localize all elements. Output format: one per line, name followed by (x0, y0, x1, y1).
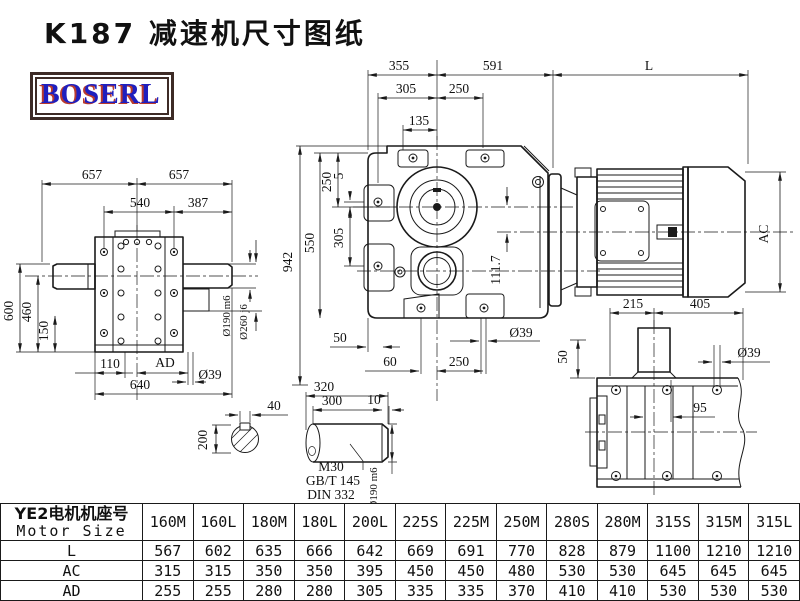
dim-405: 405 (690, 296, 711, 311)
dim-40: 40 (267, 398, 281, 413)
value-cell: 335 (395, 581, 446, 601)
value-cell: 530 (547, 561, 598, 581)
dim-600: 600 (1, 301, 16, 322)
engineering-drawing: 355 591 L 305 250 135 942 550 250 5 305 … (0, 0, 800, 503)
dim-387: 387 (188, 195, 209, 210)
col-header: 315L (749, 504, 800, 541)
dim-dia39-front: Ø39 (509, 325, 532, 340)
dim-dia260-side: Ø260 j6 (238, 304, 250, 340)
row-label: L (1, 541, 143, 561)
value-cell: 666 (294, 541, 345, 561)
value-cell: 315 (193, 561, 244, 581)
value-cell: 280 (244, 581, 295, 601)
table-row-AC: AC 315 315 350 350 395 450 450 480 530 5… (1, 561, 800, 581)
value-cell: 1210 (698, 541, 749, 561)
shaft-side-detail: 320 300 10 M30 GB/T 145 DIN 332 Ø190 m6 (306, 379, 404, 503)
flange-bolt-holes (118, 239, 161, 344)
label-m30: M30 (318, 459, 344, 474)
dim-540: 540 (130, 195, 151, 210)
col-header: 315S (648, 504, 699, 541)
dim-dia39-side: Ø39 (198, 367, 221, 382)
dim-150: 150 (36, 321, 51, 342)
row-label: AC (1, 561, 143, 581)
row-label: AD (1, 581, 143, 601)
value-cell: 530 (749, 581, 800, 601)
value-cell: 395 (345, 561, 396, 581)
dim-942: 942 (280, 252, 295, 272)
dim-460: 460 (19, 302, 34, 323)
top-view: Ø39 95 215 405 (585, 296, 770, 497)
value-cell: 530 (698, 581, 749, 601)
value-cell: 410 (597, 581, 648, 601)
dim-200: 200 (195, 430, 210, 451)
value-cell: 645 (749, 561, 800, 581)
dim-355: 355 (389, 58, 410, 73)
value-cell: 645 (648, 561, 699, 581)
value-cell: 1210 (749, 541, 800, 561)
value-cell: 255 (143, 581, 194, 601)
col-header: 180M (244, 504, 295, 541)
col-header: 160M (143, 504, 194, 541)
col-header: 280M (597, 504, 648, 541)
motor-view: AC (549, 167, 786, 306)
value-cell: 370 (496, 581, 547, 601)
col-header: 200L (345, 504, 396, 541)
value-cell: 691 (446, 541, 497, 561)
dim-640: 640 (130, 377, 151, 392)
dim-215: 215 (623, 296, 644, 311)
shaft-section-detail: 40 200 (195, 398, 288, 462)
label-din332: DIN 332 (307, 487, 355, 502)
dim-110: 110 (100, 356, 120, 371)
dim-dia39-top: Ø39 (737, 345, 760, 360)
col-header: 315M (698, 504, 749, 541)
value-cell: 1100 (648, 541, 699, 561)
dim-657-left: 657 (82, 167, 103, 182)
value-cell: 530 (648, 581, 699, 601)
dim-AD: AD (155, 355, 175, 370)
value-cell: 635 (244, 541, 295, 561)
value-cell: 669 (395, 541, 446, 561)
dim-dia190-shaft: Ø190 m6 (368, 467, 380, 503)
dim-591: 591 (483, 58, 503, 73)
dim-135: 135 (409, 113, 430, 128)
value-cell: 828 (547, 541, 598, 561)
dim-250-bottom: 250 (449, 354, 470, 369)
dim-5: 5 (331, 172, 346, 179)
table-row-AD: AD 255 255 280 280 305 335 335 370 410 4… (1, 581, 800, 601)
dim-60: 60 (383, 354, 397, 369)
value-cell: 255 (193, 581, 244, 601)
value-cell: 410 (547, 581, 598, 601)
col-header: 250M (496, 504, 547, 541)
table-header-row: YE2电机机座号 Motor Size 160M 160L 180M 180L … (1, 504, 800, 541)
value-cell: 280 (294, 581, 345, 601)
col-header: 225M (446, 504, 497, 541)
value-cell: 350 (294, 561, 345, 581)
dim-250-top: 250 (449, 81, 470, 96)
dim-300: 300 (322, 393, 343, 408)
side-view: 657 657 540 387 600 460 150 110 AD Ø39 6… (1, 167, 262, 400)
header-english: Motor Size (1, 523, 142, 540)
col-header: 160L (193, 504, 244, 541)
dim-657-right: 657 (169, 167, 190, 182)
col-header: 225S (395, 504, 446, 541)
value-cell: 450 (395, 561, 446, 581)
header-chinese: YE2电机机座号 (1, 505, 142, 523)
col-header: 180L (294, 504, 345, 541)
col-header: 280S (547, 504, 598, 541)
value-cell: 602 (193, 541, 244, 561)
table-row-L: L 567 602 635 666 642 669 691 770 828 87… (1, 541, 800, 561)
value-cell: 450 (446, 561, 497, 581)
dim-AC: AC (756, 225, 771, 244)
value-cell: 480 (496, 561, 547, 581)
value-cell: 645 (698, 561, 749, 581)
dim-50-right: 50 (555, 350, 570, 364)
dim-305-top: 305 (396, 81, 417, 96)
value-cell: 642 (345, 541, 396, 561)
dim-L: L (645, 58, 653, 73)
value-cell: 315 (143, 561, 194, 581)
dim-50-bottom-left: 50 (333, 330, 347, 345)
motor-size-header-cell: YE2电机机座号 Motor Size (1, 504, 143, 541)
value-cell: 567 (143, 541, 194, 561)
dim-111-7: 111.7 (488, 255, 503, 285)
dim-dia190-side: Ø190 m6 (221, 295, 233, 337)
dim-550: 550 (302, 233, 317, 254)
dim-305-left: 305 (331, 228, 346, 249)
label-gbt145: GB/T 145 (306, 473, 360, 488)
motor-size-table: YE2电机机座号 Motor Size 160M 160L 180M 180L … (0, 503, 800, 601)
dim-95: 95 (693, 400, 707, 415)
drawing-sheet: { "title": "K187 减速机尺寸图纸", "logo": { "te… (0, 0, 800, 601)
value-cell: 335 (446, 581, 497, 601)
value-cell: 770 (496, 541, 547, 561)
dim-10: 10 (367, 392, 381, 407)
dim-320: 320 (314, 379, 335, 394)
value-cell: 305 (345, 581, 396, 601)
value-cell: 530 (597, 561, 648, 581)
value-cell: 350 (244, 561, 295, 581)
front-view: 355 591 L 305 250 135 942 550 250 5 305 … (280, 58, 795, 401)
value-cell: 879 (597, 541, 648, 561)
